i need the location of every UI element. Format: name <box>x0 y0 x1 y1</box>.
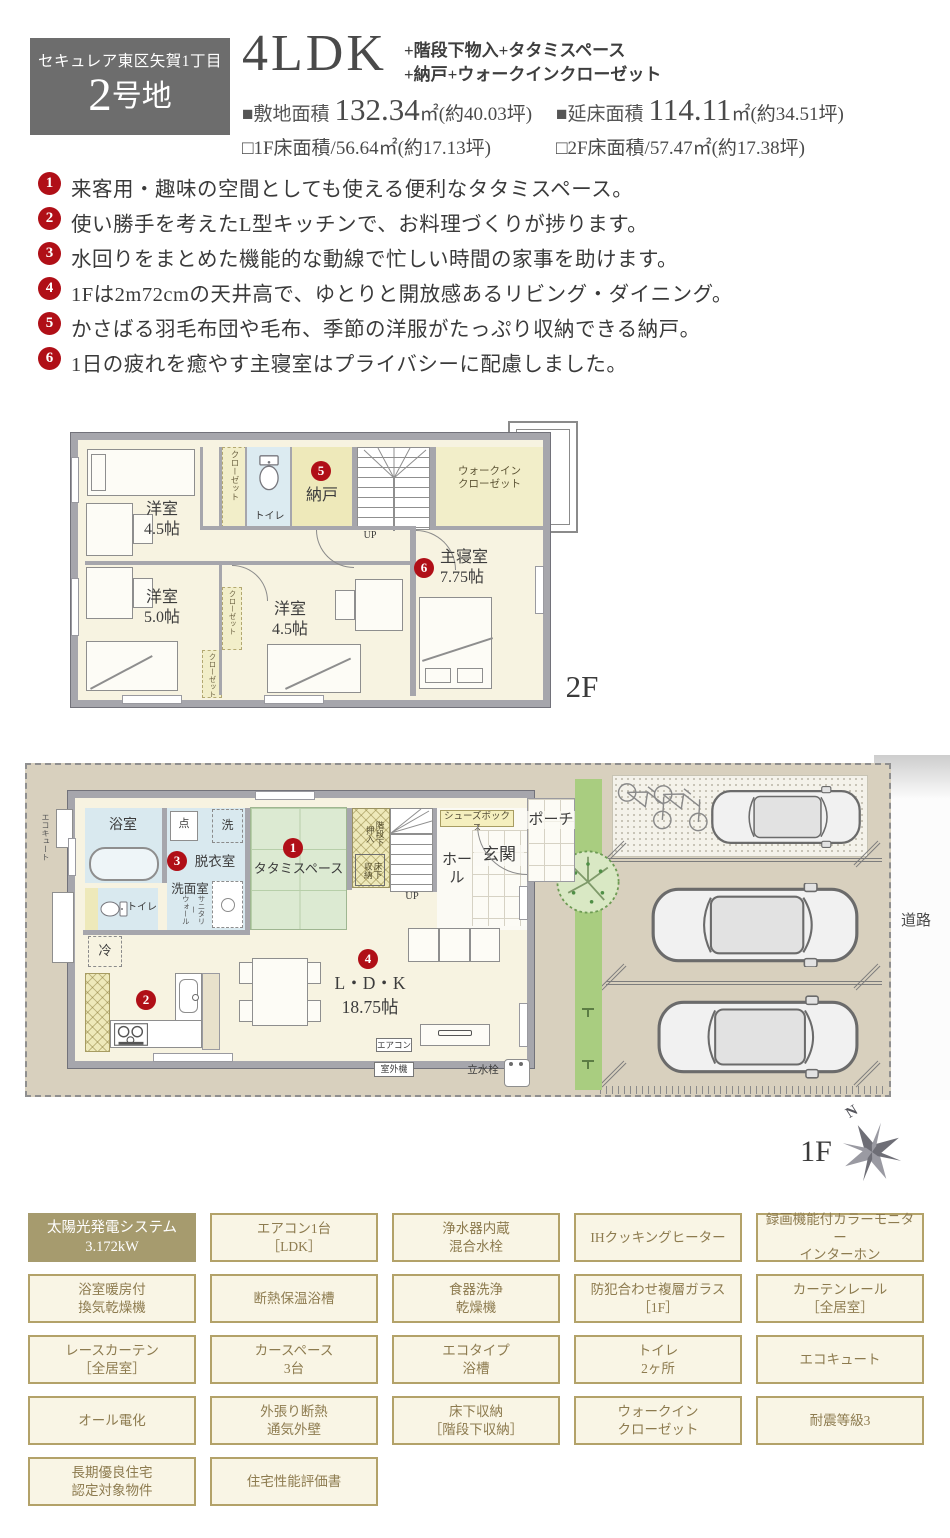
bullet-3-text: 水回りをまとめた機能的な動線で忙しい時間の家事を助けます。 <box>71 242 678 272</box>
plan-extras-1: +階段下物入+タタミスペース <box>404 36 625 61</box>
wall <box>430 447 436 530</box>
understairs-label: 階段下 押入 <box>358 813 384 855</box>
parking-divider <box>606 981 882 985</box>
ldk-label: L・D・K 18.75帖 <box>325 972 415 1019</box>
dining-table-icon <box>252 958 308 1026</box>
closet-2f-1-label: クローゼット <box>229 450 241 528</box>
toilet-2f-label: トイレ <box>247 511 292 523</box>
site-area-value: 132.34 <box>334 92 419 128</box>
ecocute-unit <box>52 892 74 963</box>
feature-car-space: カースペース 3台 <box>210 1335 378 1384</box>
closet-2f-1: クローゼット <box>222 447 247 528</box>
window <box>535 566 544 614</box>
window <box>519 1003 528 1047</box>
datsui-label: 脱衣室 <box>186 854 244 870</box>
f1-area: □1F床面積/56.64㎡(約17.13坪) <box>242 133 491 160</box>
car-icon <box>710 781 862 853</box>
window <box>264 695 324 704</box>
lot-number-big: 2 <box>88 69 112 121</box>
window <box>71 457 79 503</box>
feature-dishwasher: 食器洗浄 乾燥機 <box>392 1274 560 1323</box>
bullet-5-text: かさばる羽毛布団や毛布、季節の洋服がたっぷり収納できる納戸。 <box>71 312 701 342</box>
wall <box>290 447 292 528</box>
up-2f-label: UP <box>355 530 385 542</box>
stairs-1f-top <box>390 808 433 834</box>
bullet-2: 2 使い勝手を考えたL型キッチンで、お料理づくりが捗ります。 <box>38 207 648 237</box>
wic-label: ウォークイン クローゼット <box>436 466 543 492</box>
toilet-icon <box>98 896 128 922</box>
hall-label: ホール <box>435 851 479 888</box>
window <box>71 578 79 636</box>
window <box>68 838 76 876</box>
bed-icon <box>267 644 361 693</box>
feature-ih-heater: IHクッキングヒーター <box>574 1213 742 1262</box>
green-strip <box>575 779 602 1090</box>
sink-faucet-dot <box>192 994 199 1001</box>
ecocute-label: エコキュート <box>38 806 50 868</box>
features-grid: 太陽光発電システム 3.172kW エアコン1台 ［LDK］ 浄水器内蔵 混合水… <box>28 1213 924 1506</box>
wall <box>219 447 222 528</box>
outdoor-unit-label: 室外機 <box>374 1064 414 1075</box>
bullet-2-text: 使い勝手を考えたL型キッチンで、お料理づくりが捗ります。 <box>71 207 648 237</box>
feature-insulated-tub: 断熱保温浴槽 <box>210 1274 378 1323</box>
pillow-icon <box>91 454 106 491</box>
yoshitsu-a-label: 洋室 4.5帖 <box>118 500 206 539</box>
sofa-cushion-line <box>438 929 440 961</box>
toilet-1f-label: トイレ <box>126 902 158 914</box>
feature-interphone: 録画機能付カラーモニター インターホン <box>756 1213 924 1262</box>
feature-performance-report: 住宅性能評価書 <box>210 1457 378 1506</box>
bullet-1-badge: 1 <box>38 172 61 195</box>
pillow-icon <box>457 668 483 683</box>
parking-divider <box>606 858 882 862</box>
bullet-3: 3 水回りをまとめた機能的な動線で忙しい時間の家事を助けます。 <box>38 242 678 272</box>
yoshitsu-b-label: 洋室 5.0帖 <box>118 588 206 627</box>
wall <box>245 447 247 528</box>
lot-number-suffix: 号地 <box>112 80 172 113</box>
faucet-dot <box>519 1062 523 1066</box>
bath-label: 浴室 <box>93 817 153 834</box>
porch-label: ポーチ <box>527 811 575 829</box>
stove-icon <box>114 1023 148 1046</box>
feature-eco-tub: エコタイプ 浴槽 <box>392 1335 560 1384</box>
window <box>519 886 528 920</box>
plant-icon <box>582 1008 594 1017</box>
kitchen-badge: 2 <box>136 990 156 1010</box>
window <box>255 791 315 800</box>
bullet-2-badge: 2 <box>38 207 61 230</box>
up-1f-label: UP <box>397 891 427 904</box>
plant-icon <box>582 1060 594 1069</box>
chair-icon <box>239 1000 253 1022</box>
stairs-1f <box>390 834 433 892</box>
master-label: 主寝室 7.75帖 <box>428 548 520 587</box>
aircon-label: エアコン <box>376 1040 412 1050</box>
feature-security-glass: 防犯合わせ複層ガラス ［1F］ <box>574 1274 742 1323</box>
wall <box>436 526 543 530</box>
bullet-5-badge: 5 <box>38 312 61 335</box>
desk-icon <box>355 579 403 631</box>
feature-insulation-wall: 外張り断熱 通気外壁 <box>210 1396 378 1445</box>
feature-solar: 太陽光発電システム 3.172kW <box>28 1213 196 1262</box>
feature-aircon: エアコン1台 ［LDK］ <box>210 1213 378 1262</box>
wall <box>83 930 250 935</box>
bullet-1: 1 来客用・趣味の空間としても使える便利なタタミスペース。 <box>38 172 633 202</box>
sofa-cushion-line <box>469 929 471 961</box>
datsui-badge: 3 <box>167 851 187 871</box>
feature-bath-dryer: 浴室暖房付 換気乾燥機 <box>28 1274 196 1323</box>
faucet-icon <box>504 1059 530 1087</box>
feature-water-purifier: 浄水器内蔵 混合水栓 <box>392 1213 560 1262</box>
chair-icon <box>335 590 355 620</box>
underfloor-label: 床下 収納 <box>358 857 382 884</box>
feature-lace-curtain: レースカーテン ［全居室］ <box>28 1335 196 1384</box>
car-icon <box>650 883 860 967</box>
feature-two-toilets: トイレ 2ヶ所 <box>574 1335 742 1384</box>
bullet-6-badge: 6 <box>38 347 61 370</box>
wall <box>85 561 410 565</box>
wall <box>352 447 357 530</box>
feature-ecocute: エコキュート <box>756 1335 924 1384</box>
lot-box: セキュレア東区矢賀1丁目 2号地 <box>30 38 230 135</box>
total-area: ■延床面積 114.11 ㎡(約34.51坪) <box>556 92 844 128</box>
yoshitsu-c-label: 洋室 4.5帖 <box>246 600 334 639</box>
nando-label: 納戸 <box>292 486 352 506</box>
stairs-rail <box>393 476 395 531</box>
chair-icon <box>239 962 253 984</box>
total-area-value: 114.11 <box>648 92 731 128</box>
road-label: 道路 <box>898 912 934 930</box>
faucet-label: 立水栓 <box>464 1065 502 1078</box>
chair-icon <box>307 962 321 984</box>
feature-seismic-grade: 耐震等級3 <box>756 1396 924 1445</box>
car-icon <box>656 993 860 1081</box>
floor2-label: 2F <box>552 668 612 706</box>
feature-underfloor-storage: 床下収納 ［階段下収納］ <box>392 1396 560 1445</box>
total-area-label: ■延床面積 <box>556 99 643 126</box>
wall <box>219 565 222 695</box>
site-area-unit: ㎡(約40.03坪) <box>420 99 532 126</box>
bullet-1-text: 来客用・趣味の空間としても使える便利なタタミスペース。 <box>71 172 633 202</box>
compass-icon <box>829 1109 916 1196</box>
tv-icon <box>438 1030 472 1036</box>
ldk-badge: 4 <box>358 949 378 969</box>
closet-2f-3-label: クローゼット <box>207 653 218 698</box>
sofa-icon <box>408 928 500 962</box>
inspection-label: 点 <box>170 818 198 831</box>
feature-walkin-closet: ウォークイン クローゼット <box>574 1396 742 1445</box>
bullet-3-badge: 3 <box>38 242 61 265</box>
total-area-unit: ㎡(約34.51坪) <box>731 99 843 126</box>
stairs-fan-lines <box>358 448 431 478</box>
site-area-label: ■敷地面積 <box>242 99 329 126</box>
kitchen-halfwall <box>202 973 220 1050</box>
nando-badge: 5 <box>311 461 331 481</box>
fridge-label: 冷 <box>88 943 122 959</box>
sanitary-wall-label: サニタリー ウォール <box>189 893 205 927</box>
bathtub-icon <box>89 847 159 881</box>
faucet-dot <box>509 1062 513 1066</box>
plan-extras-2: +納戸+ウォークインクローゼット <box>404 60 661 85</box>
window <box>122 695 182 704</box>
bullet-5: 5 かさばる羽毛布団や毛布、季節の洋服がたっぷり収納できる納戸。 <box>38 312 701 342</box>
toilet-icon <box>256 453 282 495</box>
window <box>153 1053 233 1062</box>
laundry-label: 洗 <box>212 818 243 833</box>
boundary-ticks <box>600 1086 888 1094</box>
stairs-winder-lines <box>391 809 432 833</box>
plan-type: 4LDK <box>242 24 387 83</box>
kitchen-pantry-strip <box>85 973 110 1052</box>
feature-all-electric: オール電化 <box>28 1396 196 1445</box>
tatami-badge: 1 <box>283 838 303 858</box>
bullet-6: 6 1日の疲れを癒やす主寝室はプライバシーに配慮しました。 <box>38 347 627 377</box>
pillow-icon <box>425 668 451 683</box>
tatami-label: タタミスペース <box>248 861 349 877</box>
site-area: ■敷地面積 132.34 ㎡(約40.03坪) <box>242 92 532 128</box>
chair-icon <box>307 1000 321 1022</box>
vanity-bowl <box>221 898 235 912</box>
lot-location: セキュレア東区矢賀1丁目 <box>30 49 230 71</box>
toilet-1f-shelf <box>85 888 98 930</box>
f2-area: □2F床面積/57.47㎡(約17.38坪) <box>556 133 805 160</box>
stairs-2f <box>357 447 430 530</box>
flyer-page: セキュレア東区矢賀1丁目 2号地 4LDK +階段下物入+タタミスペース +納戸… <box>0 0 950 1538</box>
bullet-4-text: 1Fは2m72cmの天井高で、ゆとりと開放感あるリビング・ダイニング。 <box>71 277 733 307</box>
lot-number: 2号地 <box>30 71 230 119</box>
feature-long-term-housing: 長期優良住宅 認定対象物件 <box>28 1457 196 1506</box>
bullet-6-text: 1日の疲れを癒やす主寝室はプライバシーに配慮しました。 <box>71 347 627 377</box>
bullet-4: 4 1Fは2m72cmの天井高で、ゆとりと開放感あるリビング・ダイニング。 <box>38 277 733 307</box>
bullet-4-badge: 4 <box>38 277 61 300</box>
feature-curtain-rail: カーテンレール ［全居室］ <box>756 1274 924 1323</box>
